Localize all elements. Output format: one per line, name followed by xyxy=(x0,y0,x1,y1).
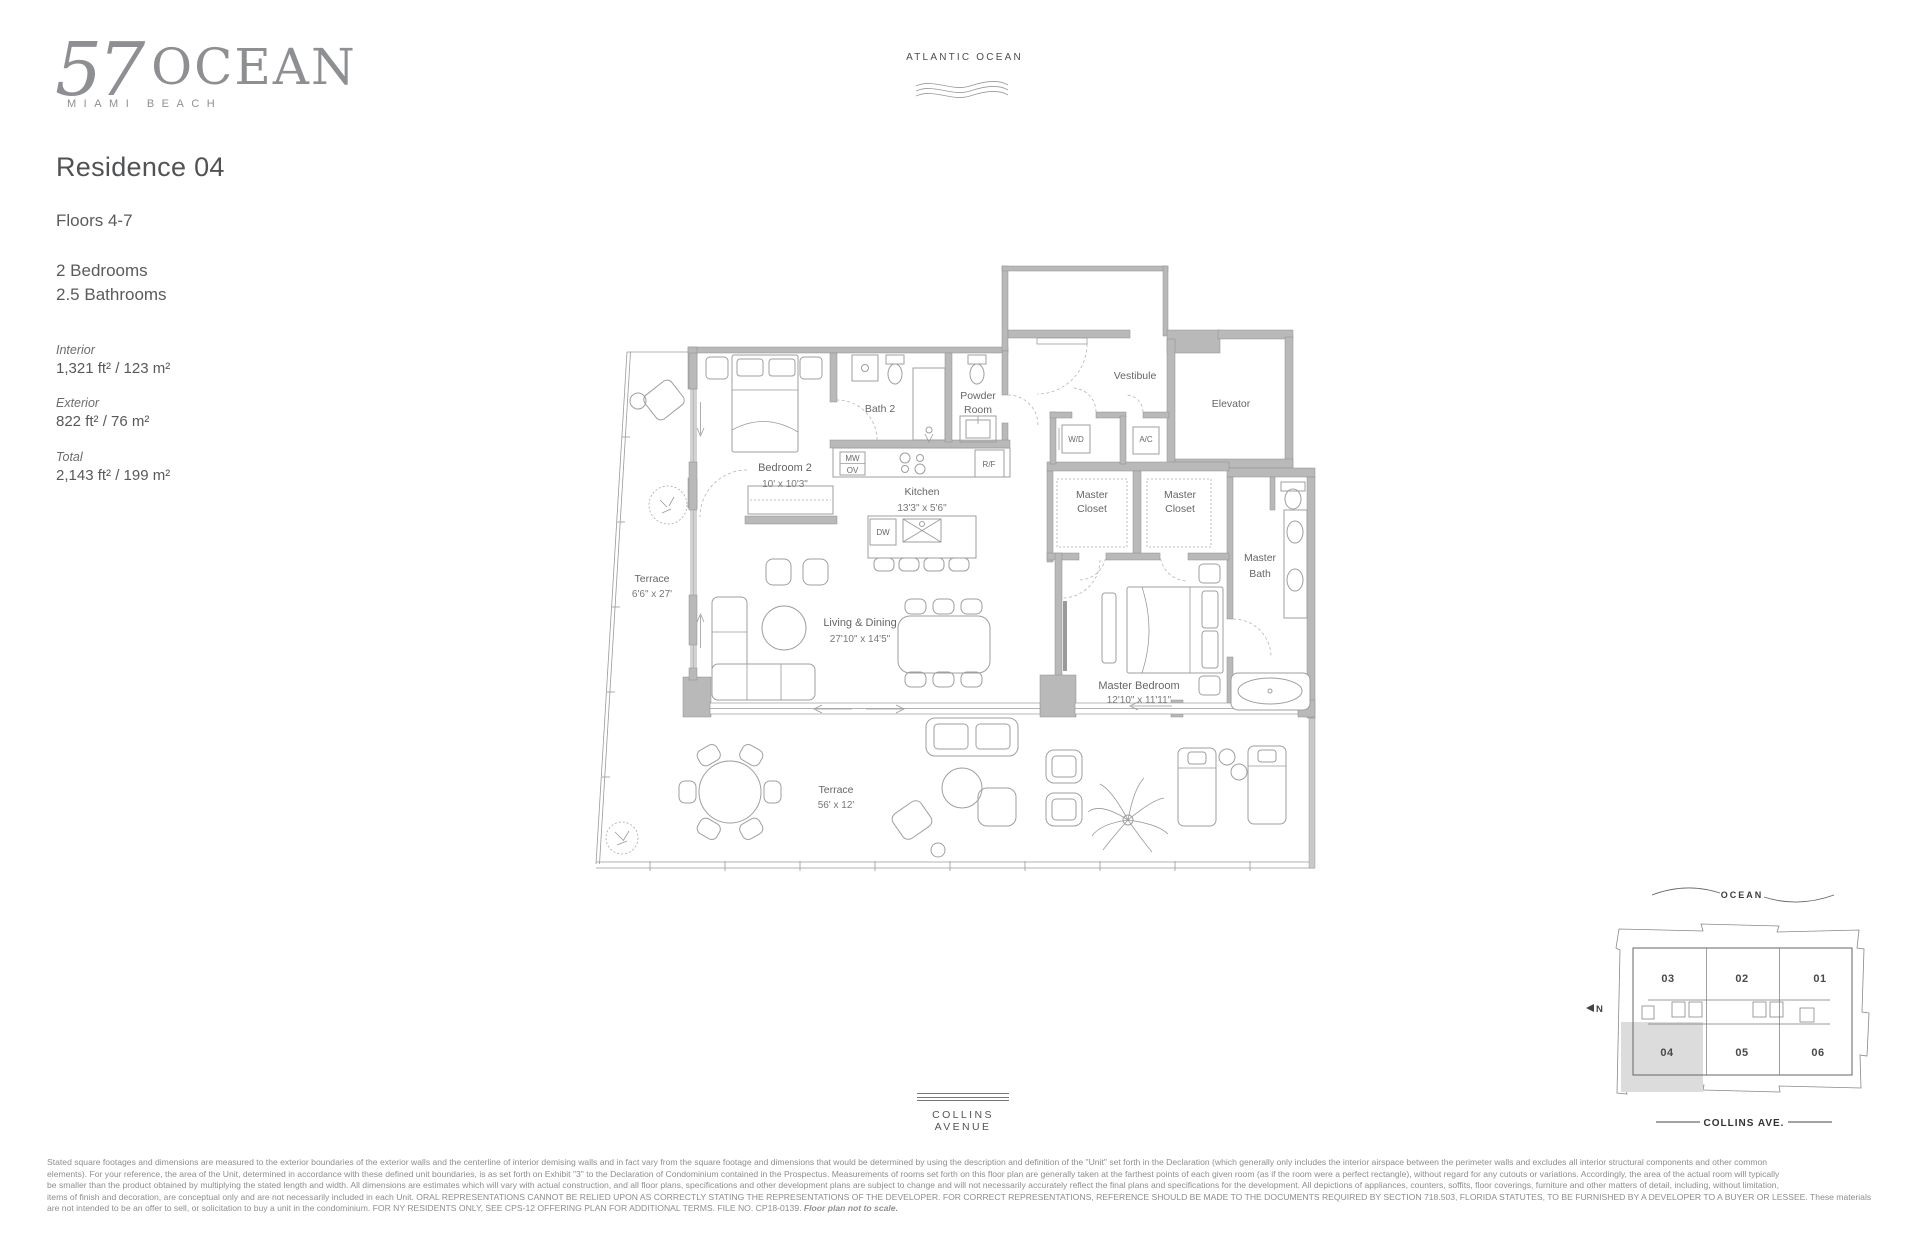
logo-name: OCEAN xyxy=(151,38,357,96)
disclaimer-line-2: elements). For your reference, the area … xyxy=(47,1169,1880,1181)
master-bath-fixtures xyxy=(1231,482,1310,710)
logo-number: 57 xyxy=(55,38,141,102)
total-area-value: 2,143 ft² / 199 m² xyxy=(56,467,170,484)
label-terrace-main: Terrace xyxy=(818,784,853,796)
north-label: N xyxy=(1596,1004,1603,1015)
label-terrace-side: Terrace xyxy=(634,573,669,585)
label-living-dims: 27'10" x 14'5" xyxy=(830,634,891,645)
north-indicator: N xyxy=(1586,1004,1603,1015)
bath2-fixtures xyxy=(852,355,945,442)
bedrooms-label: 2 Bedrooms xyxy=(56,259,167,283)
label-master: Master Bedroom xyxy=(1098,680,1179,692)
label-ov: OV xyxy=(847,466,859,475)
disclaimer-not-to-scale: Floor plan not to scale. xyxy=(804,1203,898,1213)
bed-bath-summary: 2 Bedrooms 2.5 Bathrooms xyxy=(56,259,167,307)
terrace-side-furniture xyxy=(630,378,687,524)
disclaimer-line-4: items of finish and decoration, are conc… xyxy=(47,1192,1880,1204)
atlantic-ocean-label: ATLANTIC OCEAN xyxy=(872,52,1057,63)
floor-plan: Bedroom 2 10' x 10'3" Bath 2 Powder Room… xyxy=(555,243,1355,918)
exterior-area-value: 822 ft² / 76 m² xyxy=(56,413,149,430)
label-kitchen-dims: 13'3" x 5'6" xyxy=(897,503,947,514)
master-bedroom-furniture xyxy=(1102,564,1223,695)
label-mcloset1-a: Master xyxy=(1076,489,1109,501)
label-mcloset1-b: Closet xyxy=(1077,503,1107,515)
interior-area-label: Interior xyxy=(56,343,170,357)
keyplan-street-label: COLLINS AVE. xyxy=(1704,1118,1785,1129)
collins-avenue-label: COLLINS AVENUE xyxy=(915,1109,1011,1133)
terrace-main-furniture xyxy=(606,718,1286,857)
keyplan-unit-01: 01 xyxy=(1813,973,1826,985)
label-mcloset2-b: Closet xyxy=(1165,503,1195,515)
disclaimer-line-5-text: are not intended to be an offer to sell,… xyxy=(47,1203,804,1213)
label-powder-1: Powder xyxy=(960,390,996,402)
label-mcloset2-a: Master xyxy=(1164,489,1197,501)
exterior-area-label: Exterior xyxy=(56,396,149,410)
street-rule xyxy=(917,1093,1009,1094)
north-arrow-icon xyxy=(1586,1004,1594,1012)
interior-area-value: 1,321 ft² / 123 m² xyxy=(56,360,170,377)
keyplan-wave-left xyxy=(1652,888,1720,895)
keyplan-unit-05: 05 xyxy=(1735,1047,1748,1059)
floors-label: Floors 4-7 xyxy=(56,211,133,231)
legal-disclaimer: Stated square footages and dimensions ar… xyxy=(47,1157,1880,1215)
logo-tagline: MIAMI BEACH xyxy=(67,98,222,110)
label-dw: DW xyxy=(876,528,890,537)
label-terrace-side-dims: 6'6" x 27' xyxy=(632,589,672,600)
label-mbath-2: Bath xyxy=(1249,568,1271,580)
keyplan-ocean-label: OCEAN xyxy=(1721,890,1764,900)
bedroom2-furniture xyxy=(706,355,833,514)
ocean-wave-icon xyxy=(912,76,1012,106)
street-rule xyxy=(917,1097,1009,1098)
bathrooms-label: 2.5 Bathrooms xyxy=(56,283,167,307)
disclaimer-line-5: are not intended to be an offer to sell,… xyxy=(47,1203,1880,1215)
disclaimer-line-1: Stated square footages and dimensions ar… xyxy=(47,1157,1880,1169)
exterior-area: Exterior 822 ft² / 76 m² xyxy=(56,396,149,430)
label-master-dims: 12'10" x 11'11" xyxy=(1107,695,1172,706)
label-elevator: Elevator xyxy=(1212,398,1251,410)
label-mbath-1: Master xyxy=(1244,552,1277,564)
label-wd: W/D xyxy=(1068,435,1084,444)
label-bath2: Bath 2 xyxy=(865,403,896,415)
label-vestibule: Vestibule xyxy=(1114,370,1157,382)
label-mw: MW xyxy=(845,454,860,463)
label-powder-2: Room xyxy=(964,404,992,416)
street-rule xyxy=(917,1100,1009,1101)
keyplan-unit-02: 02 xyxy=(1735,973,1748,985)
total-area-label: Total xyxy=(56,450,170,464)
interior-area: Interior 1,321 ft² / 123 m² xyxy=(56,343,170,377)
label-living: Living & Dining xyxy=(823,617,896,629)
page-title: Residence 04 xyxy=(56,152,225,183)
label-terrace-main-dims: 56' x 12' xyxy=(818,800,855,811)
label-kitchen: Kitchen xyxy=(904,486,939,498)
key-plan: OCEAN 03 02 01 04 05 06 N COLLINS AVE. xyxy=(1575,875,1920,1145)
tv xyxy=(1063,601,1067,671)
living-dining-furniture xyxy=(712,559,1067,700)
label-bedroom2-dims: 10' x 10'3" xyxy=(762,479,808,490)
total-area: Total 2,143 ft² / 199 m² xyxy=(56,450,170,484)
keyplan-wave-right xyxy=(1764,895,1834,902)
keyplan-unit-03: 03 xyxy=(1661,973,1674,985)
sliding-doors xyxy=(710,703,1298,714)
disclaimer-line-3: be smaller than the product obtained by … xyxy=(47,1180,1880,1192)
palm-tree xyxy=(1088,778,1168,852)
keyplan-unit-06: 06 xyxy=(1811,1047,1824,1059)
brand-logo: 57 OCEAN xyxy=(55,38,357,102)
label-bedroom2: Bedroom 2 xyxy=(758,462,812,474)
label-rf: R/F xyxy=(983,460,996,469)
label-ac: A/C xyxy=(1139,435,1153,444)
keyplan-unit-04: 04 xyxy=(1660,1047,1674,1059)
collins-avenue-block: COLLINS AVENUE xyxy=(915,1093,1011,1133)
